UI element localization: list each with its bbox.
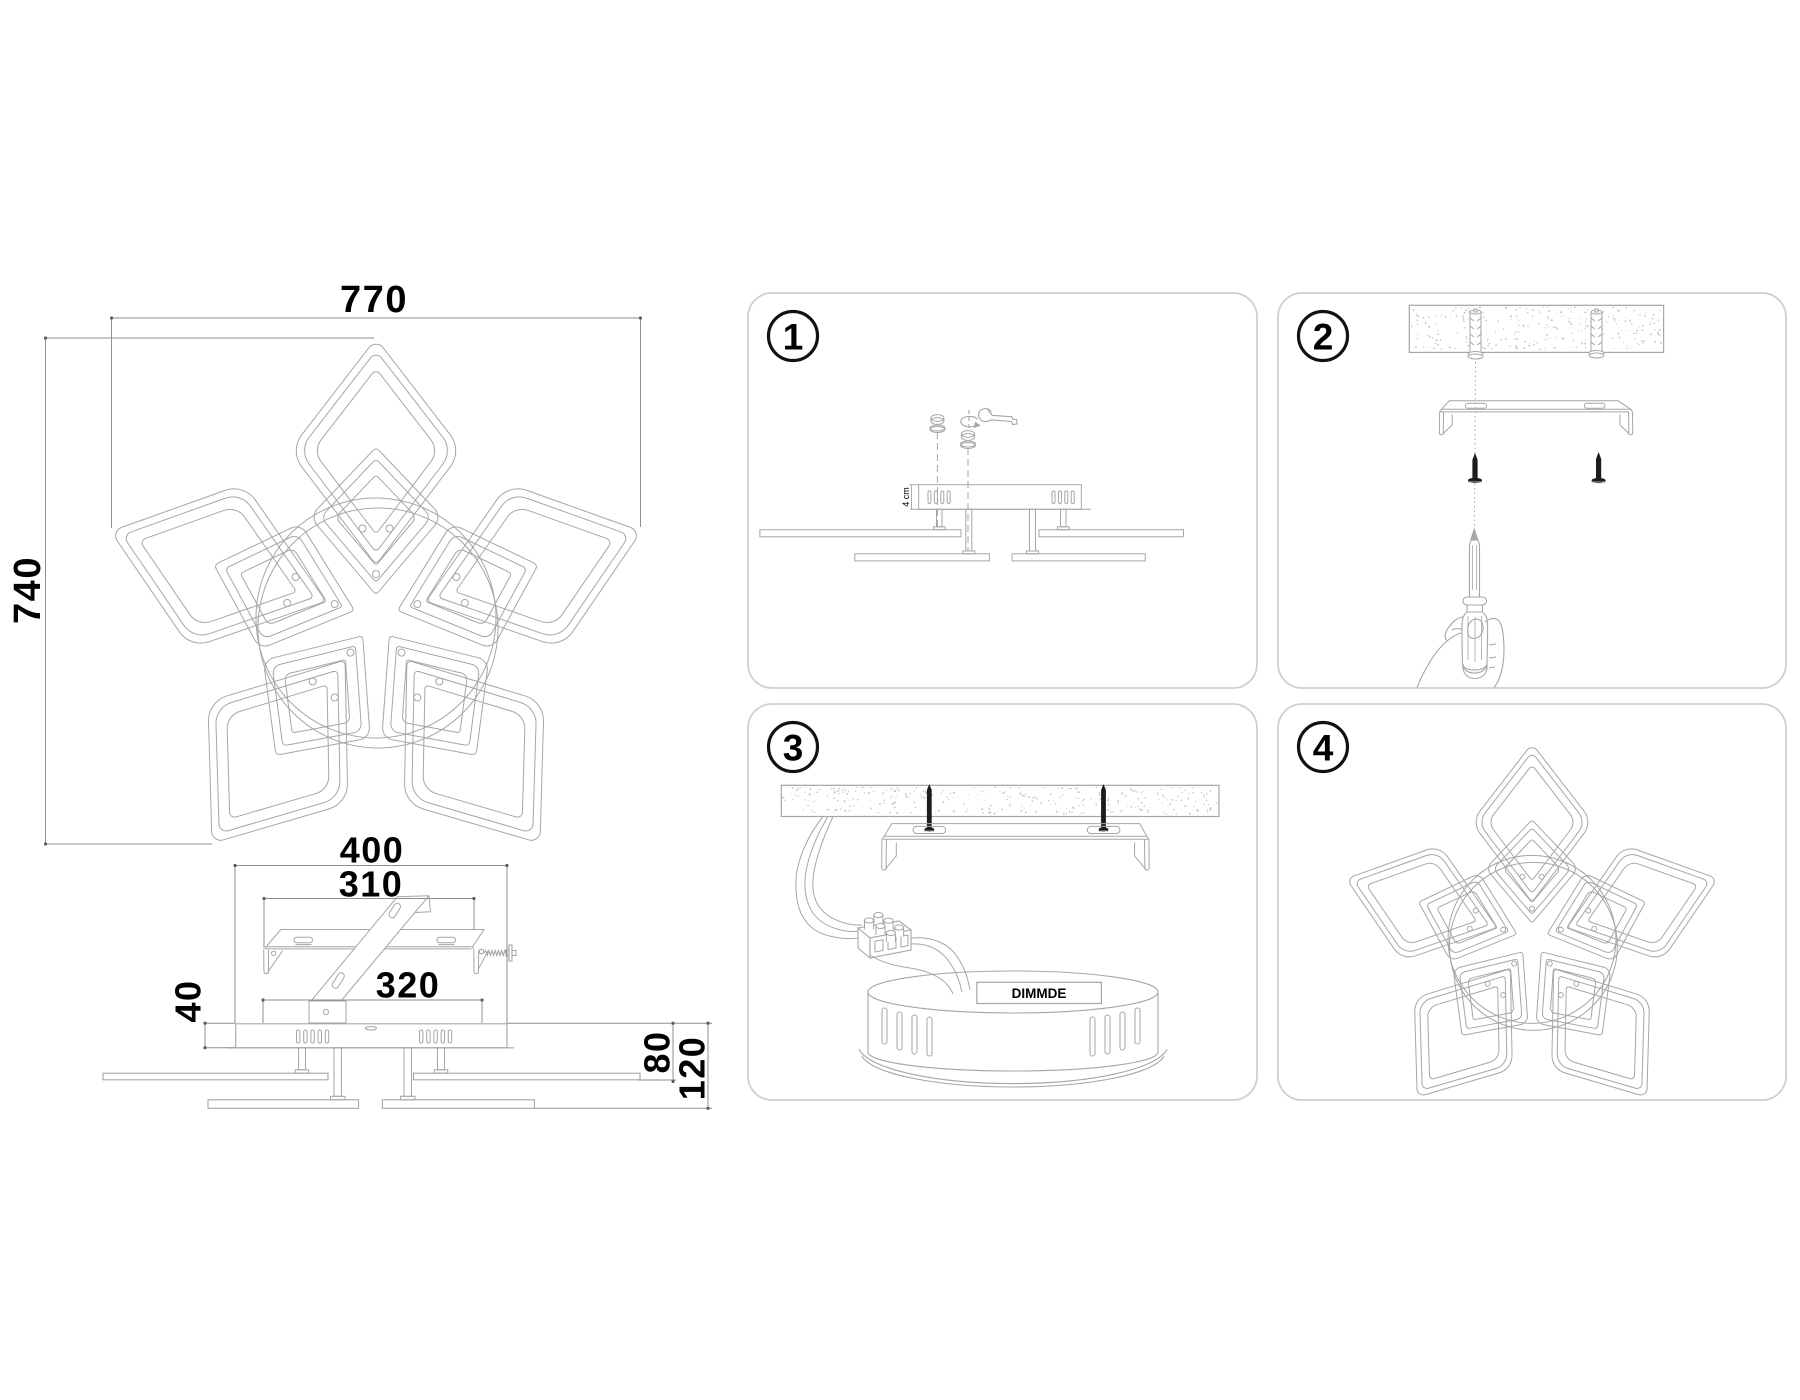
svg-text:320: 320: [376, 965, 441, 1006]
svg-text:310: 310: [339, 864, 404, 905]
svg-text:770: 770: [340, 279, 408, 321]
svg-text:4 cm: 4 cm: [901, 487, 911, 507]
svg-text:DIMMDE: DIMMDE: [1012, 986, 1067, 1001]
svg-text:40: 40: [168, 979, 209, 1022]
svg-text:2: 2: [1313, 317, 1334, 358]
svg-text:4: 4: [1313, 728, 1334, 769]
svg-text:1: 1: [783, 317, 804, 358]
svg-text:740: 740: [7, 556, 49, 624]
svg-text:3: 3: [783, 728, 804, 769]
svg-text:120: 120: [672, 1036, 713, 1101]
